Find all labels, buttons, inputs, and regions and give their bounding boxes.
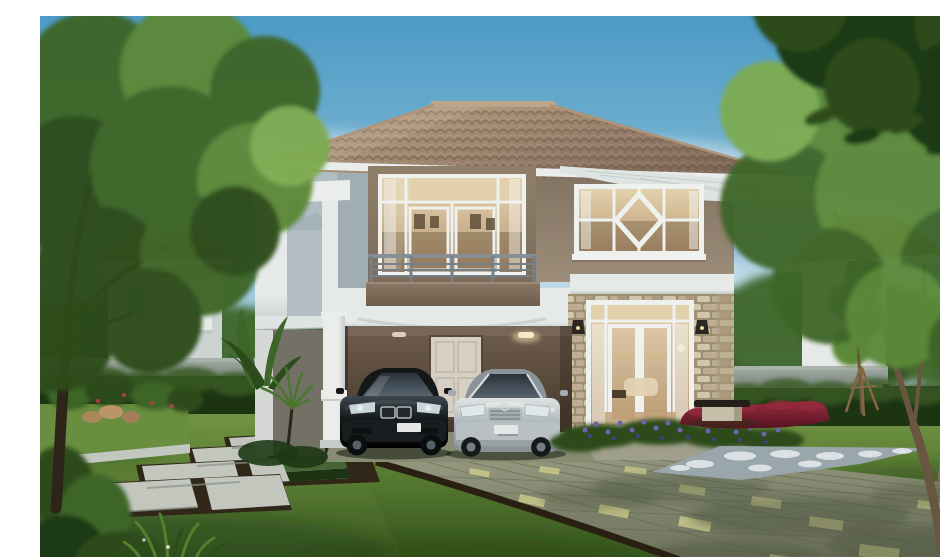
- architectural-rendering: Daytime 3D rendering of a two-storey sub…: [40, 16, 940, 557]
- color-grade: [40, 16, 940, 557]
